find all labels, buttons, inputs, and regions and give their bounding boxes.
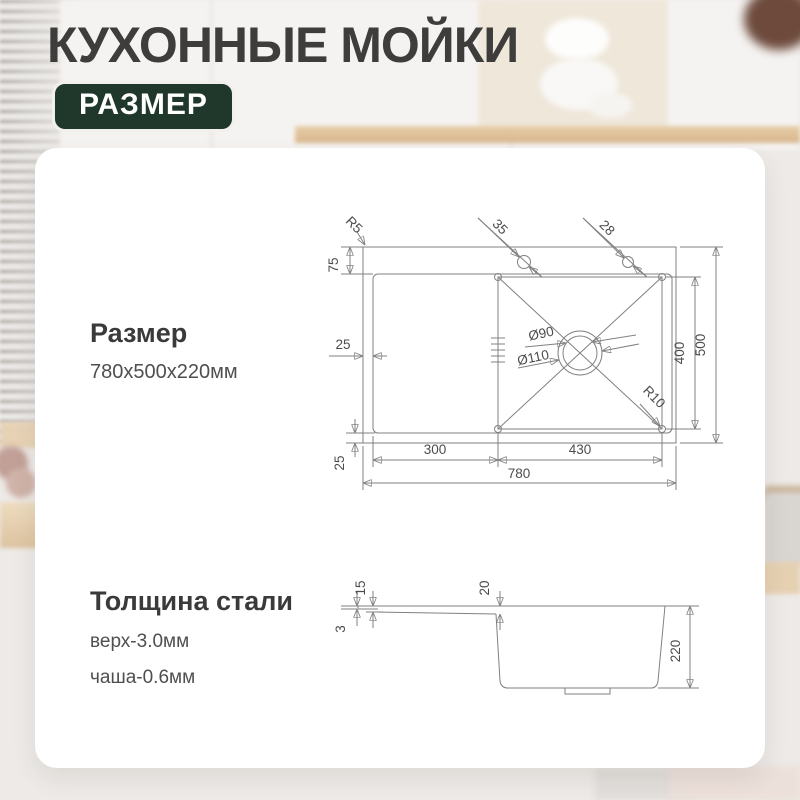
bottom-inset-dimension: 25	[332, 419, 375, 471]
left-inset-dimension: 25	[329, 337, 387, 356]
canister	[764, 492, 800, 566]
hole-left-label: 35	[490, 216, 511, 237]
sink-technical-drawing: 35 28 R5 75	[35, 148, 765, 768]
faucet-hole-left	[518, 256, 531, 269]
shelf-bowl	[588, 92, 632, 118]
size-badge: РАЗМЕР	[52, 81, 235, 132]
drain-stub	[565, 688, 610, 694]
deck-depth-dimension: 75	[326, 247, 373, 274]
total-width-label: 780	[508, 466, 531, 481]
infographic-root: КУХОННЫЕ МОЙКИ РАЗМЕР Размер 780x500x220…	[0, 0, 800, 800]
top-view-drawing: 35 28 R5 75	[326, 213, 723, 490]
left-inset-label: 25	[335, 337, 350, 352]
bowl-width-label: 430	[569, 442, 592, 457]
drainboard-width-dimension: 300	[373, 432, 498, 467]
corner-radius-label: R5	[343, 213, 366, 236]
drain-outer-label: Ø110	[516, 347, 550, 368]
drain-outer-dimension: Ø110	[516, 344, 639, 368]
deck-thickness-label: 3	[333, 625, 348, 633]
corner-radius-dimension: R5	[343, 213, 366, 245]
bowl-profile	[496, 606, 665, 688]
total-width-dimension: 780	[363, 446, 676, 490]
rim-height-label: 15	[353, 580, 368, 595]
bowl-width-dimension: 430	[498, 432, 662, 467]
bowl-corner-radius-dimension: R10	[640, 383, 668, 426]
board-drop-label: 20	[477, 580, 492, 595]
floor-tint	[670, 766, 800, 800]
bowl-corner-radius-label: R10	[640, 383, 668, 411]
drain-inner-label: Ø90	[527, 324, 555, 344]
drain-inner-dimension: Ø90	[525, 324, 636, 347]
page-title: КУХОННЫЕ МОЙКИ	[47, 16, 647, 74]
total-depth-label: 500	[693, 334, 708, 357]
wood-rail	[295, 126, 800, 143]
side-view-drawing: 3 15 20	[333, 580, 699, 694]
bottom-inset-label: 25	[332, 455, 347, 470]
outer-rect	[363, 247, 676, 443]
total-height-label: 220	[668, 640, 683, 663]
hole-right-label: 28	[597, 217, 618, 238]
deck-depth-label: 75	[326, 257, 341, 272]
bowl-depth-label: 400	[672, 342, 687, 365]
fruit-blob	[6, 468, 36, 498]
drainboard-line	[376, 612, 496, 614]
deck-thickness-dimension: 3	[333, 591, 358, 633]
faucet-hole-right	[623, 257, 634, 268]
drainboard-width-label: 300	[424, 442, 447, 457]
dimensions-card: Размер 780x500x220мм Толщина стали верх-…	[35, 148, 765, 768]
